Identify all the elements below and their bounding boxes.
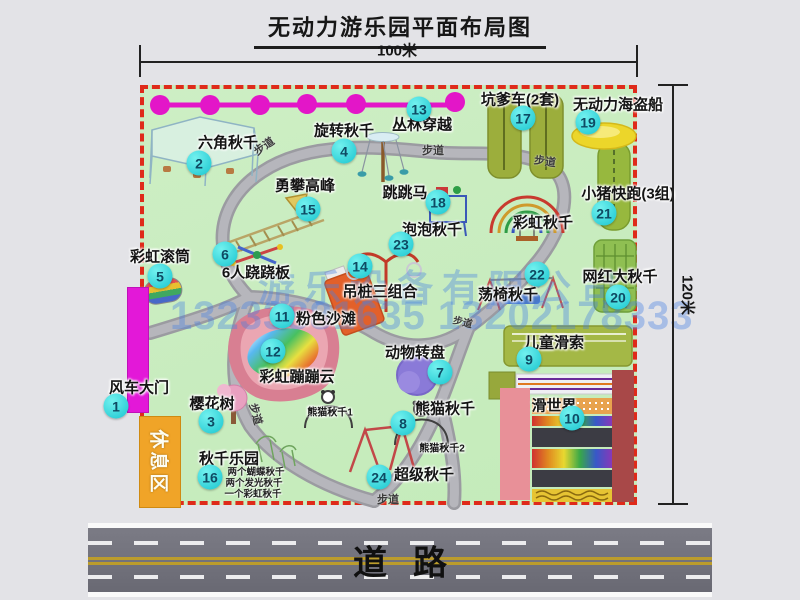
badge-kids-zipline: 9 bbox=[517, 347, 542, 372]
road: 道路 bbox=[88, 523, 712, 597]
badge-rotating-swing: 4 bbox=[332, 139, 357, 164]
label-big-swing: 网红大秋千 bbox=[582, 266, 657, 287]
badge-rainbow-roller: 5 bbox=[148, 264, 173, 289]
badge-rainbow-bounce-cloud: 12 bbox=[261, 339, 286, 364]
label-piggy-run: 小猪快跑(3组) bbox=[581, 183, 674, 204]
dimension-height-label: 120米 bbox=[678, 275, 699, 315]
label-super-swing: 超级秋千 bbox=[394, 464, 454, 485]
dimension-tick-right-bottom bbox=[658, 503, 688, 505]
label-panda-swing: 熊猫秋千 bbox=[415, 398, 475, 419]
label-panda-swing-2: 熊猫秋千2 bbox=[419, 440, 465, 455]
badge-kengdie-car: 17 bbox=[511, 106, 536, 131]
badge-pink-beach: 11 bbox=[270, 304, 295, 329]
badge-windmill-gate: 1 bbox=[104, 394, 129, 419]
badge-jumping-horse: 18 bbox=[426, 190, 451, 215]
label-jumping-horse: 跳跳马 bbox=[382, 182, 427, 203]
badge-panda-swing: 8 bbox=[391, 411, 416, 436]
walkway-label-2: 步道 bbox=[422, 142, 444, 158]
badge-hexagon-swing: 2 bbox=[187, 151, 212, 176]
badge-seesaw: 6 bbox=[213, 242, 238, 267]
road-label: 道路 bbox=[327, 536, 473, 585]
badge-hanging-post-combo: 14 bbox=[348, 254, 373, 279]
label-peak-climbing: 勇攀高峰 bbox=[275, 175, 335, 196]
walkway-label-3: 步道 bbox=[533, 152, 557, 171]
badge-cherry-tree: 3 bbox=[199, 409, 224, 434]
label-hanging-post-combo: 吊桩三组合 bbox=[342, 281, 417, 302]
rest-area-label: 休息区 bbox=[147, 429, 174, 495]
badge-big-swing: 20 bbox=[606, 285, 631, 310]
badge-peak-climbing: 15 bbox=[296, 197, 321, 222]
badge-piggy-run: 21 bbox=[592, 201, 617, 226]
dimension-tick-top-left bbox=[139, 45, 141, 77]
badge-bubble-swing: 23 bbox=[389, 232, 414, 257]
layout-plan-root: 无动力游乐园平面布局图 100米 120米 bbox=[0, 0, 800, 600]
dimension-line-top bbox=[140, 61, 637, 63]
label-pink-beach: 粉色沙滩 bbox=[296, 308, 356, 329]
badge-animal-turntable: 7 bbox=[428, 360, 453, 385]
dimension-tick-right-top bbox=[658, 84, 688, 86]
swing-park-note-3: 一个彩虹秋千 bbox=[224, 486, 281, 500]
label-panda-swing-1: 熊猫秋千1 bbox=[307, 404, 353, 419]
badge-jungle-crossing: 13 bbox=[407, 97, 432, 122]
walkway-label-6: 步道 bbox=[377, 491, 399, 507]
label-rotating-swing: 旋转秋千 bbox=[314, 120, 374, 141]
badge-swing-chair: 22 bbox=[525, 262, 550, 287]
badge-swing-park: 16 bbox=[198, 465, 223, 490]
dimension-width-label: 100米 bbox=[377, 40, 417, 61]
label-seesaw: 6人跷跷板 bbox=[222, 262, 290, 283]
label-rainbow-bounce-cloud: 彩虹蹦蹦云 bbox=[259, 366, 334, 387]
label-hexagon-swing: 六角秋千 bbox=[198, 132, 258, 153]
label-rainbow-swing: 彩虹秋千 bbox=[513, 212, 573, 233]
badge-super-swing: 24 bbox=[367, 465, 392, 490]
dimension-line-right bbox=[672, 85, 674, 505]
badge-slide-world: 10 bbox=[560, 406, 585, 431]
dimension-tick-top-right bbox=[636, 45, 638, 77]
label-swing-chair: 荡椅秋千 bbox=[478, 284, 538, 305]
badge-pirate-ship: 19 bbox=[576, 110, 601, 135]
rest-area-box: 休息区 bbox=[139, 416, 181, 508]
